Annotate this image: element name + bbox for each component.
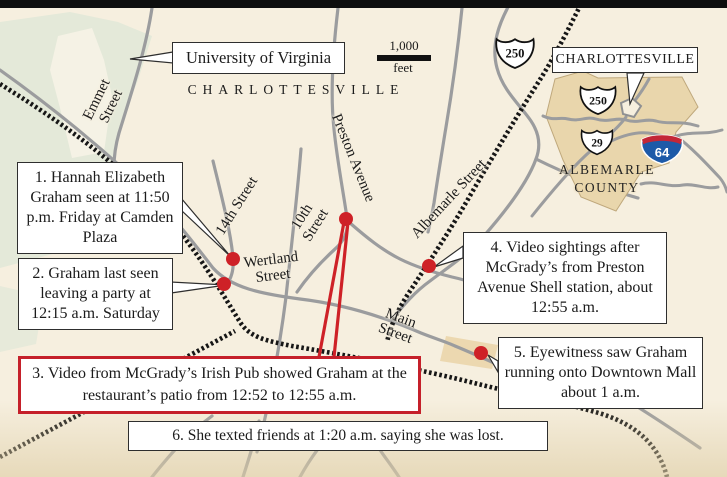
marker-dot-3: [339, 212, 353, 226]
city-name-label: CHARLOTTESVILLE: [188, 82, 405, 98]
county-name-line: COUNTY: [559, 179, 655, 197]
scale-unit-label: feet: [393, 60, 412, 76]
marker-dot-5: [474, 346, 488, 360]
road-path-bottom-d: [380, 450, 399, 477]
news-map: 250 250 29 64 CHARLOTTESVILLE 1,000 feet…: [0, 0, 727, 477]
callout-1: 1. Hannah Elizabeth Graham seen at 11:50…: [17, 162, 183, 254]
site3-leader-lines: [319, 222, 348, 357]
scale-distance-label: 1,000: [389, 38, 418, 54]
us29-shield-inset-number: 29: [591, 137, 603, 149]
county-name-label: ALBEMARLE COUNTY: [559, 161, 655, 197]
callout-4: 4. Video sightings after McGrady’s from …: [463, 232, 667, 324]
marker-dot-1: [226, 252, 240, 266]
inset-city-callout: CHARLOTTESVILLE: [552, 47, 698, 73]
i64-shield-number: 64: [655, 145, 670, 160]
callout-3-highlighted: 3. Video from McGrady’s Irish Pub showed…: [18, 356, 421, 414]
marker-dot-4: [422, 259, 436, 273]
street-label-wertland: Wertland Street: [243, 249, 301, 287]
top-border-bar: [0, 0, 727, 8]
callout-6: 6. She texted friends at 1:20 a.m. sayin…: [128, 421, 548, 451]
callout-2: 2. Graham last seen leaving a party at 1…: [18, 258, 173, 330]
marker-dot-2: [217, 277, 231, 291]
us250-shield-main-number: 250: [506, 47, 525, 61]
us250-shield-inset-number: 250: [589, 93, 607, 107]
uva-callout: University of Virginia: [172, 42, 345, 74]
county-name-line: ALBEMARLE: [559, 161, 655, 179]
callout-5: 5. Eyewitness saw Graham running onto Do…: [498, 337, 703, 409]
